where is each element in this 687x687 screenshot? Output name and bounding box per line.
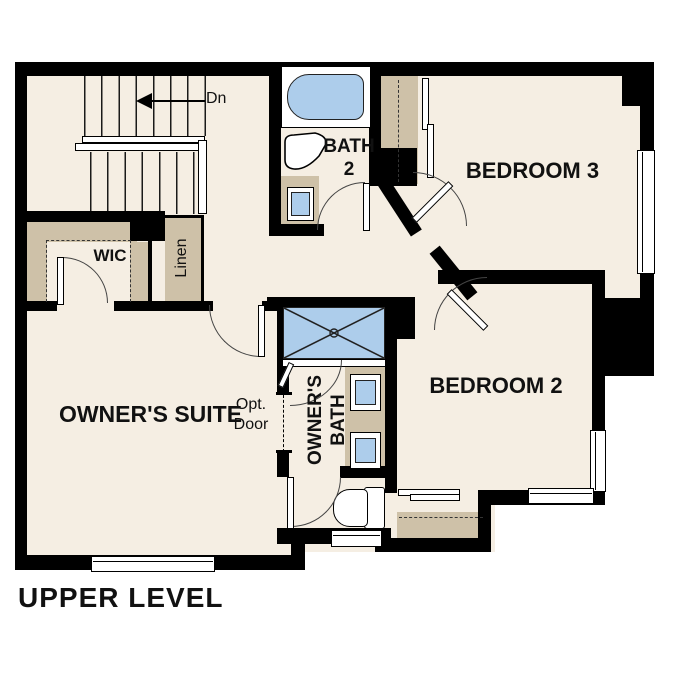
wall-linen-right-line xyxy=(201,218,204,302)
closet3-slider-panel-a xyxy=(422,78,429,130)
wall-suite-north-a xyxy=(15,301,57,311)
room-label-linen: Linen xyxy=(173,222,193,294)
wall-bath-west-lower xyxy=(277,451,289,477)
wall-bath2-bottom xyxy=(269,224,324,236)
room-label-owners-bath: OWNER'S BATH xyxy=(305,360,349,480)
bath2-door-leaf xyxy=(363,183,370,231)
closet2-slider-panel-b xyxy=(410,494,460,501)
window-owners-suite-south xyxy=(91,556,215,572)
owners-sink1 xyxy=(355,380,376,405)
room-label-owners-suite: OWNER'S SUITE xyxy=(58,400,243,430)
stairs-down-arrow-line xyxy=(150,100,205,102)
shower-x-icon xyxy=(284,308,384,358)
closet2-dash xyxy=(399,517,483,518)
shower xyxy=(283,307,385,359)
floor-plan: BEDROOM 3 BEDROOM 2 OWNER'S SUITE BATH 2… xyxy=(0,0,687,687)
wall-suite-north-b xyxy=(114,301,213,311)
wall-bedroom2-west xyxy=(385,297,397,493)
optional-door-jamb-bottom xyxy=(276,450,292,453)
owners-sink2 xyxy=(355,438,376,463)
stairs-down-arrow-icon xyxy=(136,93,152,109)
bath2-sink xyxy=(291,192,310,216)
stairs-lower-flight xyxy=(90,152,207,214)
window-owners-bath-south xyxy=(331,530,382,547)
window-bedroom2-south xyxy=(528,488,594,504)
wic-shelf-left xyxy=(27,222,47,302)
wall-left xyxy=(15,62,27,570)
room-label-bedroom2: BEDROOM 2 xyxy=(398,373,594,399)
annotation-opt-door: Opt. Door xyxy=(226,395,276,435)
stairs-rail-lower xyxy=(75,143,205,151)
closet3-dash xyxy=(398,80,399,182)
wall-wic-linen-line xyxy=(148,241,152,301)
optional-door-dash xyxy=(283,395,284,452)
window-bedroom2-east xyxy=(590,430,606,492)
stairs-rail-side xyxy=(198,140,207,214)
stairs-rail-upper xyxy=(82,136,205,143)
toilet-bowl xyxy=(333,489,368,527)
suite-door-leaf xyxy=(258,305,265,357)
room-label-wic: WIC xyxy=(85,246,135,266)
annotation-stairs-down: Dn xyxy=(206,90,236,108)
room-label-bedroom3: BEDROOM 3 xyxy=(425,158,640,184)
wall-stairs-corner-block xyxy=(130,211,165,241)
bathtub xyxy=(287,74,364,120)
wic-door-leaf xyxy=(57,257,64,305)
wall-suite-step xyxy=(291,528,305,570)
wall-wic-top xyxy=(15,211,137,222)
owners-bath-door-leaf xyxy=(287,477,294,529)
room-label-bath2: BATH 2 xyxy=(317,136,381,182)
wall-linen-top-line xyxy=(165,215,204,218)
wall-stairs-bath2-divider xyxy=(269,62,281,236)
wall-closet2-bottom xyxy=(375,538,491,552)
page-title: UPPER LEVEL xyxy=(18,582,318,614)
